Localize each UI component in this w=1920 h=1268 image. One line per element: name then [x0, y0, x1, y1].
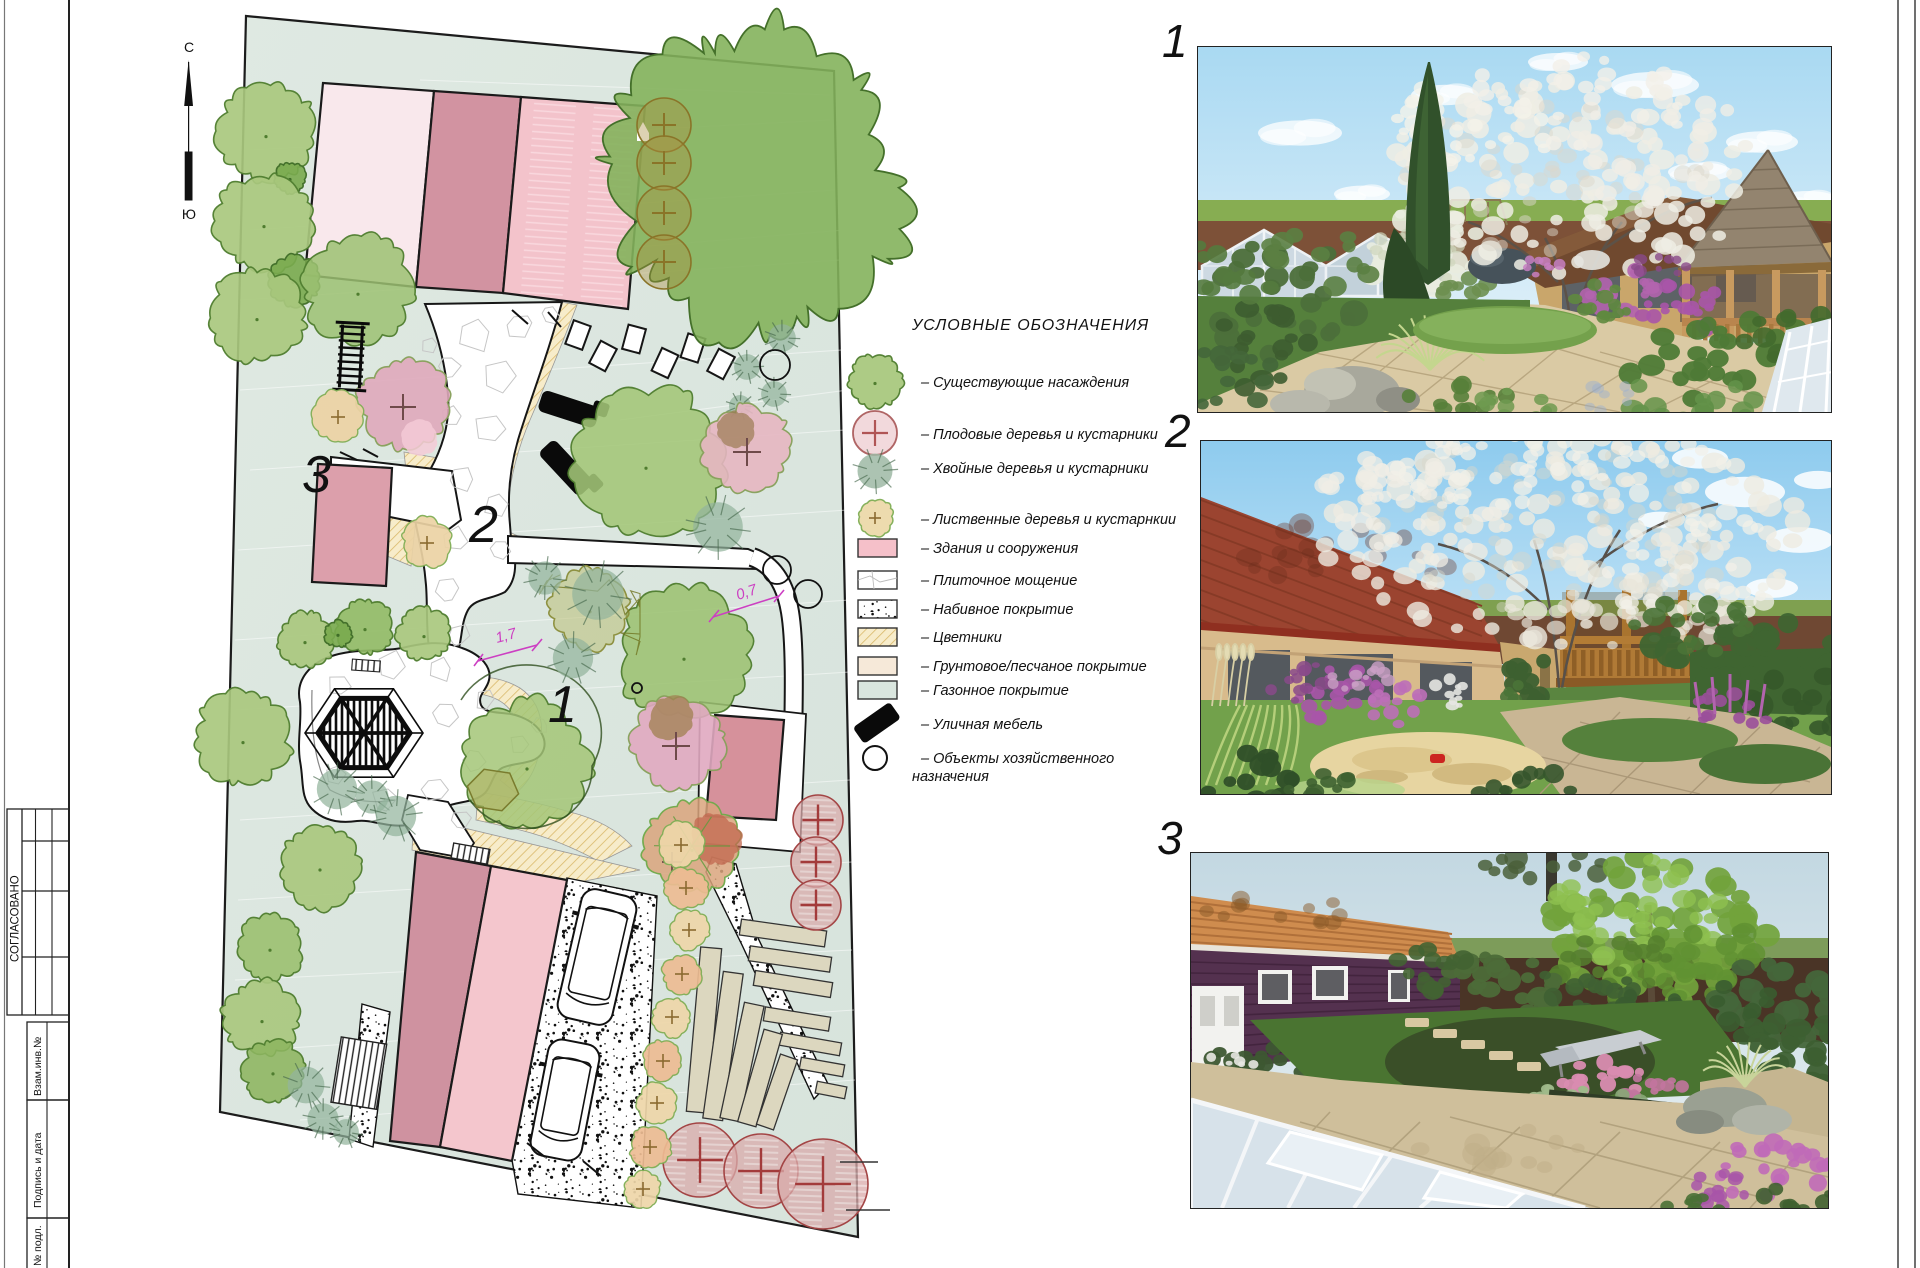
svg-text:– Плодовые деревья и кустарник: – Плодовые деревья и кустарники	[920, 427, 1158, 443]
svg-text:1: 1	[1162, 15, 1188, 67]
svg-text:Подпись и дата: Подпись и дата	[32, 1132, 44, 1208]
svg-text:3: 3	[1157, 812, 1183, 864]
svg-text:– Здания и сооружения: – Здания и сооружения	[920, 541, 1078, 557]
svg-text:2: 2	[1164, 405, 1191, 457]
svg-text:УСЛОВНЫЕ ОБОЗНАЧЕНИЯ: УСЛОВНЫЕ ОБОЗНАЧЕНИЯ	[911, 317, 1149, 334]
svg-text:– Набивное покрытие: – Набивное покрытие	[920, 602, 1073, 618]
svg-text:– Существующие насаждения: – Существующие насаждения	[920, 375, 1129, 391]
svg-text:Взам.инв.№: Взам.инв.№	[32, 1037, 44, 1096]
svg-text:– Уличная мебель: – Уличная мебель	[920, 717, 1043, 733]
svg-text:– Цветники: – Цветники	[920, 630, 1002, 646]
svg-text:– Хвойные деревья и кустарники: – Хвойные деревья и кустарники	[920, 461, 1149, 477]
svg-text:– Лиственные деревья и кустарн: – Лиственные деревья и кустарнкии	[920, 512, 1176, 528]
svg-text:С: С	[184, 39, 194, 55]
svg-text:– Грунтовое/песчаное покрытие: – Грунтовое/песчаное покрытие	[920, 659, 1147, 675]
svg-text:№ подл.: № подл.	[32, 1225, 44, 1266]
svg-text:3: 3	[302, 446, 331, 504]
svg-text:2: 2	[468, 496, 498, 554]
svg-text:– Объекты хозяйственного: – Объекты хозяйственного	[920, 751, 1114, 767]
svg-text:1: 1	[548, 676, 577, 734]
svg-text:Ю: Ю	[182, 206, 196, 222]
svg-text:СОГЛАСОВАНО: СОГЛАСОВАНО	[10, 875, 22, 962]
svg-text:– Газонное покрытие: – Газонное покрытие	[920, 683, 1069, 699]
svg-text:назначения: назначения	[912, 769, 989, 785]
svg-text:– Плиточное мощение: – Плиточное мощение	[920, 573, 1077, 589]
